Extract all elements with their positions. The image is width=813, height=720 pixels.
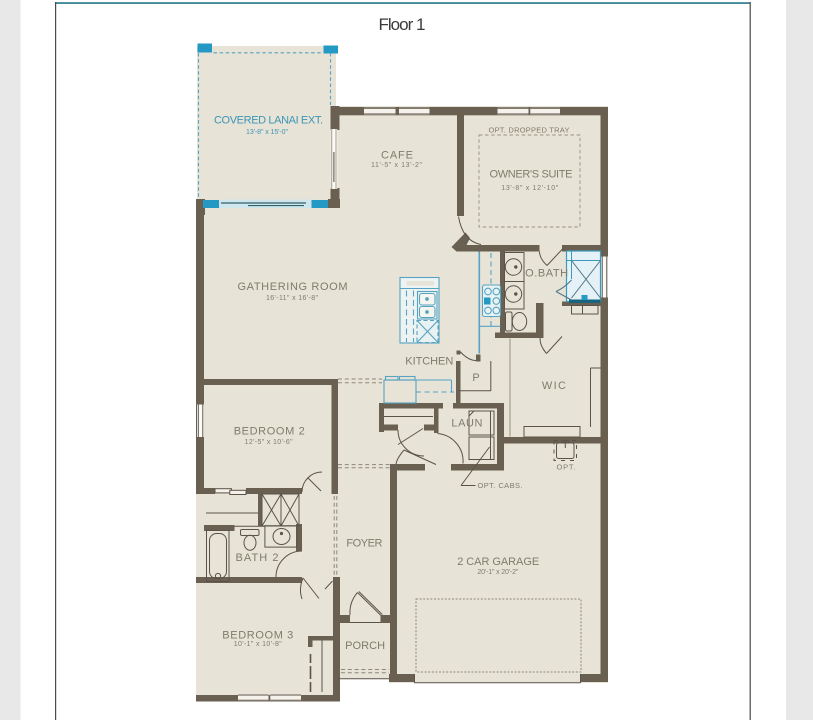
svg-text:2 CAR GARAGE: 2 CAR GARAGE bbox=[457, 556, 539, 568]
svg-text:BEDROOM 2: BEDROOM 2 bbox=[234, 425, 305, 437]
svg-text:COVERED LANAI EXT.: COVERED LANAI EXT. bbox=[214, 114, 323, 126]
svg-text:WIC: WIC bbox=[542, 380, 566, 392]
svg-text:P: P bbox=[472, 372, 479, 384]
svg-text:13'-8" x 12'-10": 13'-8" x 12'-10" bbox=[501, 185, 559, 192]
svg-text:CAFE: CAFE bbox=[381, 150, 413, 162]
svg-text:GATHERING ROOM: GATHERING ROOM bbox=[238, 281, 348, 293]
svg-text:20'-1" x 20'-2": 20'-1" x 20'-2" bbox=[477, 569, 519, 576]
svg-text:BEDROOM 3: BEDROOM 3 bbox=[222, 630, 293, 642]
svg-text:OPT. CABS.: OPT. CABS. bbox=[478, 481, 523, 490]
svg-text:11'-5" x 13'-2": 11'-5" x 13'-2" bbox=[371, 162, 423, 169]
svg-text:OWNER'S SUITE: OWNER'S SUITE bbox=[490, 169, 573, 181]
svg-text:O.BATH: O.BATH bbox=[525, 267, 568, 279]
svg-text:12'-5" x 10'-6": 12'-5" x 10'-6" bbox=[245, 439, 294, 446]
svg-text:BATH 2: BATH 2 bbox=[236, 552, 279, 564]
svg-text:FOYER: FOYER bbox=[346, 538, 382, 550]
svg-text:13'-8" x 15'-0": 13'-8" x 15'-0" bbox=[246, 129, 289, 136]
svg-text:PORCH: PORCH bbox=[345, 640, 385, 652]
svg-text:16'-11" x 16'-8": 16'-11" x 16'-8" bbox=[266, 295, 319, 302]
svg-text:Floor 1: Floor 1 bbox=[379, 15, 426, 34]
svg-text:OPT.: OPT. bbox=[557, 463, 576, 472]
svg-text:10'-1" x 10'-8": 10'-1" x 10'-8" bbox=[234, 641, 283, 648]
svg-text:OPT. DROPPED TRAY: OPT. DROPPED TRAY bbox=[489, 126, 570, 135]
svg-text:KITCHEN: KITCHEN bbox=[405, 355, 453, 367]
svg-text:LAUN: LAUN bbox=[451, 418, 482, 430]
